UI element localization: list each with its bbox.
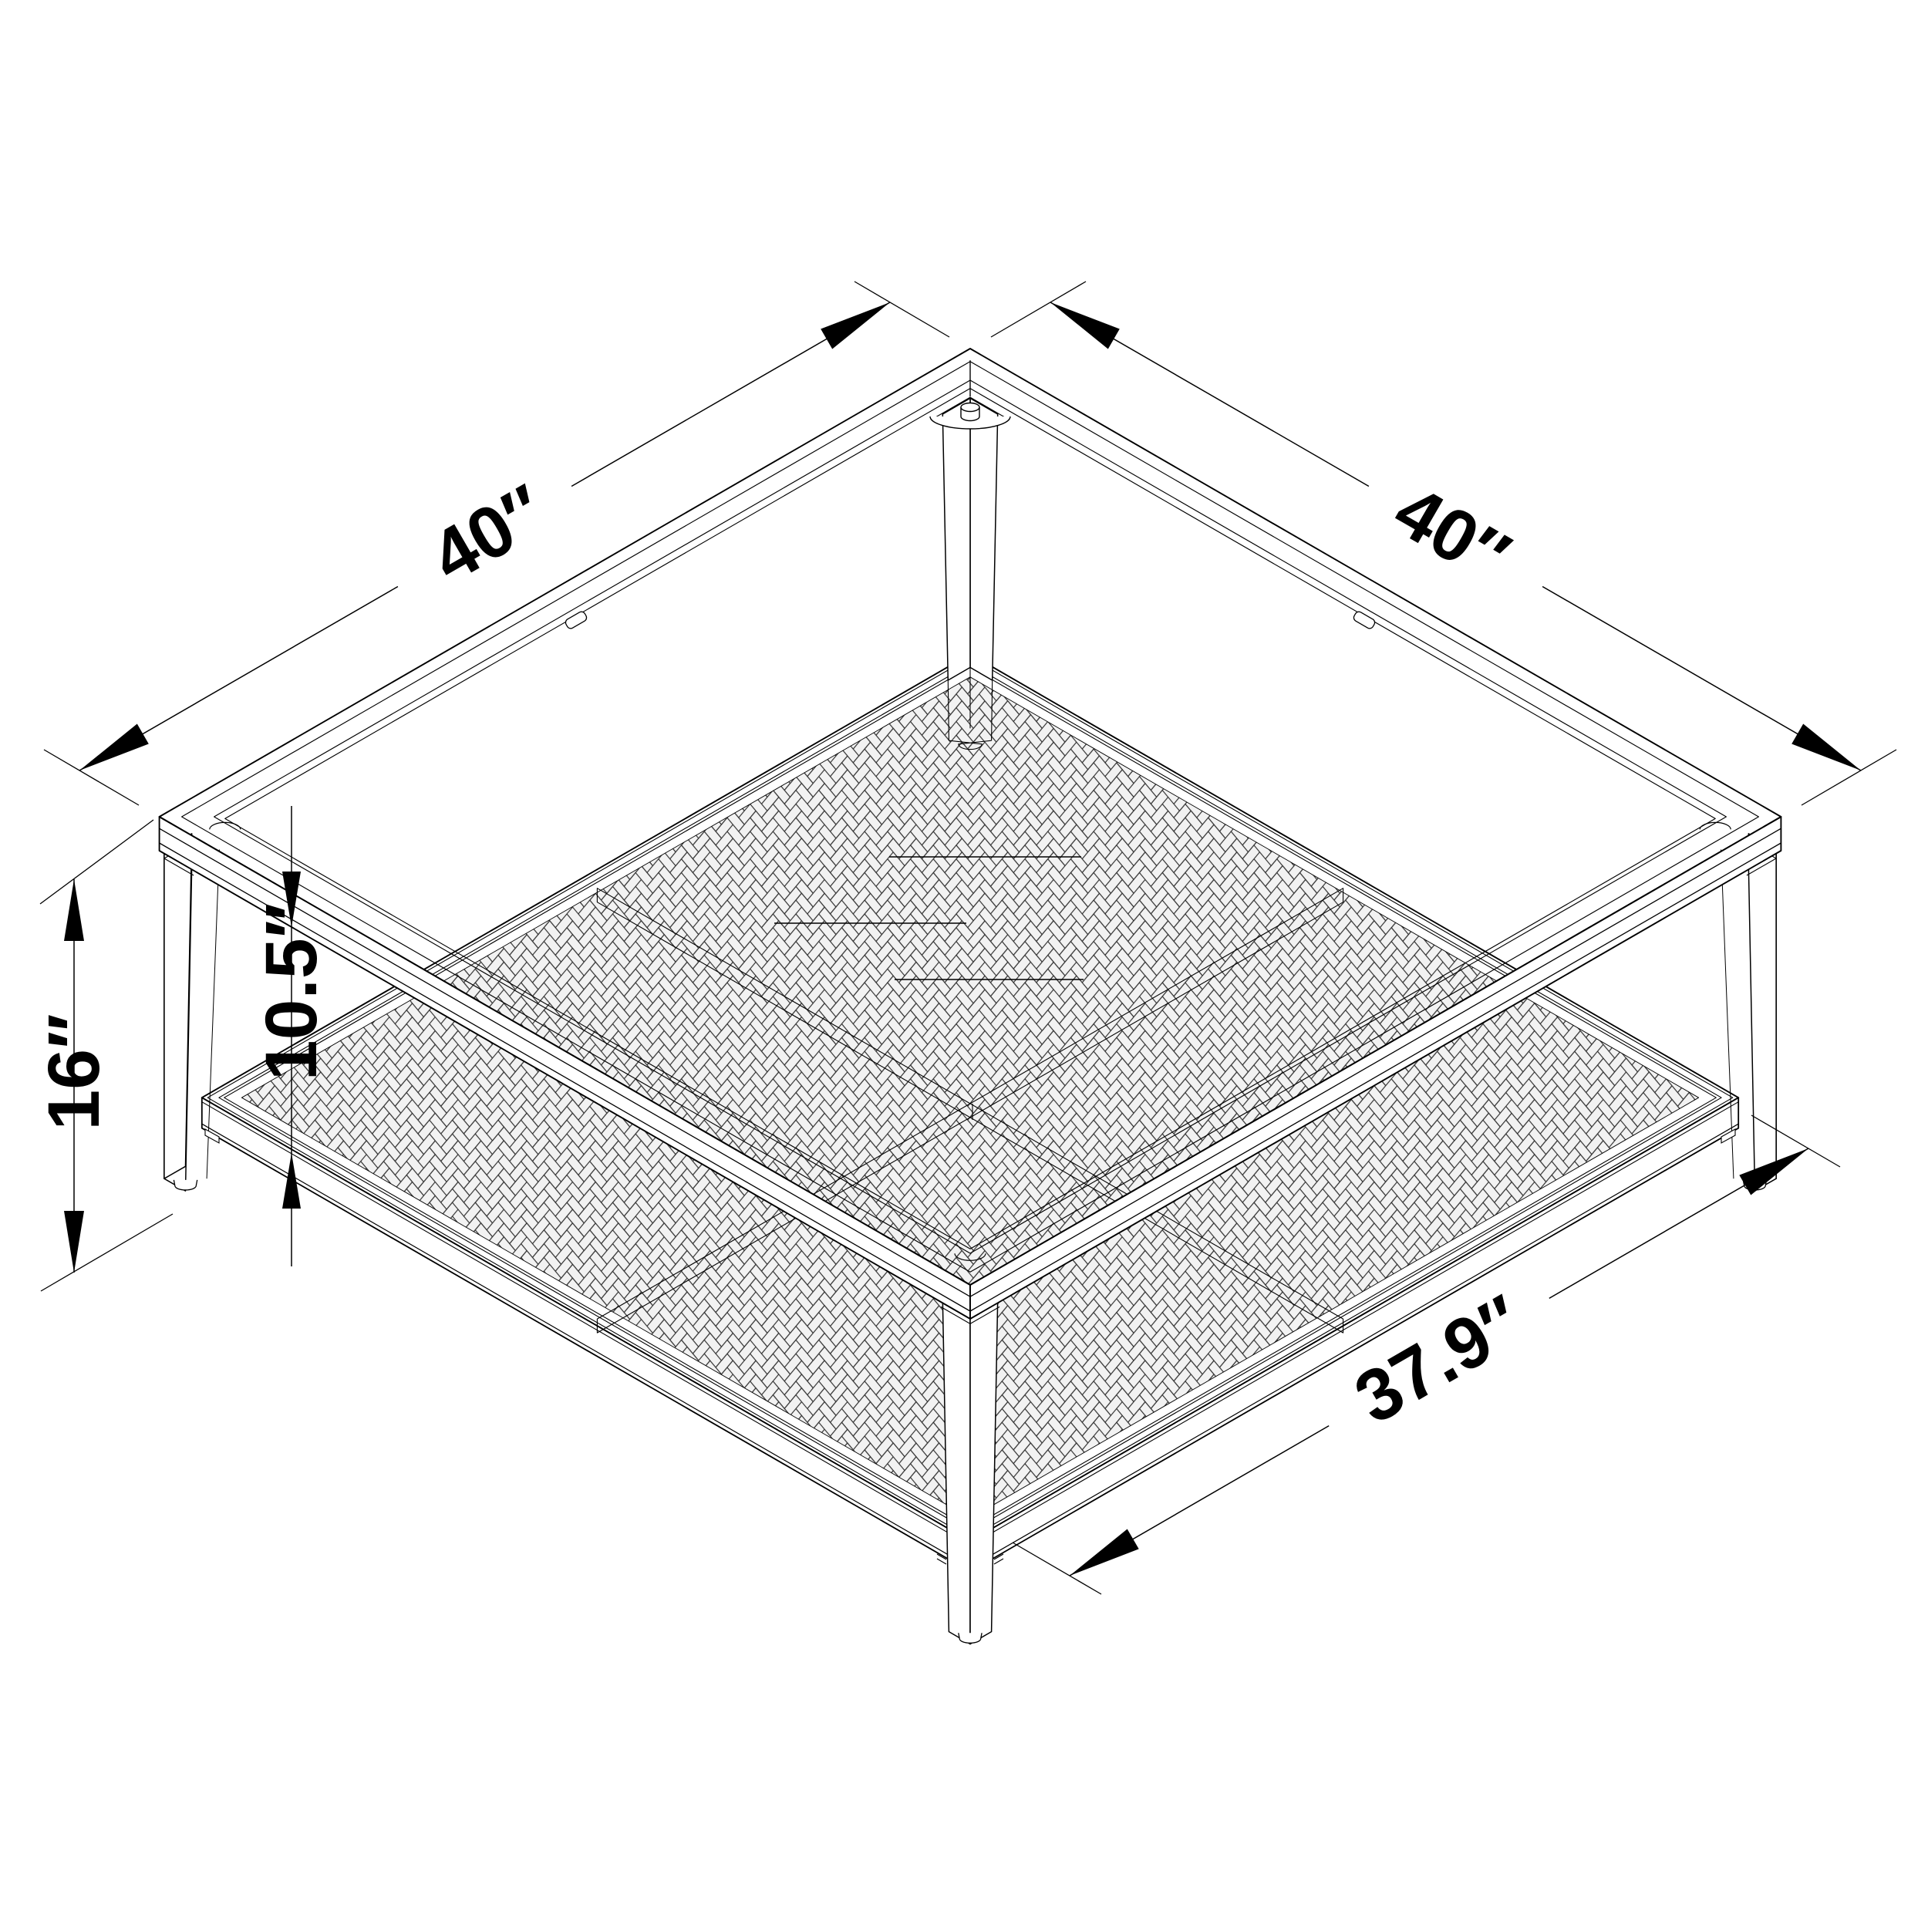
svg-text:10.5″: 10.5″ <box>251 903 332 1081</box>
svg-text:16″: 16″ <box>33 1013 115 1130</box>
